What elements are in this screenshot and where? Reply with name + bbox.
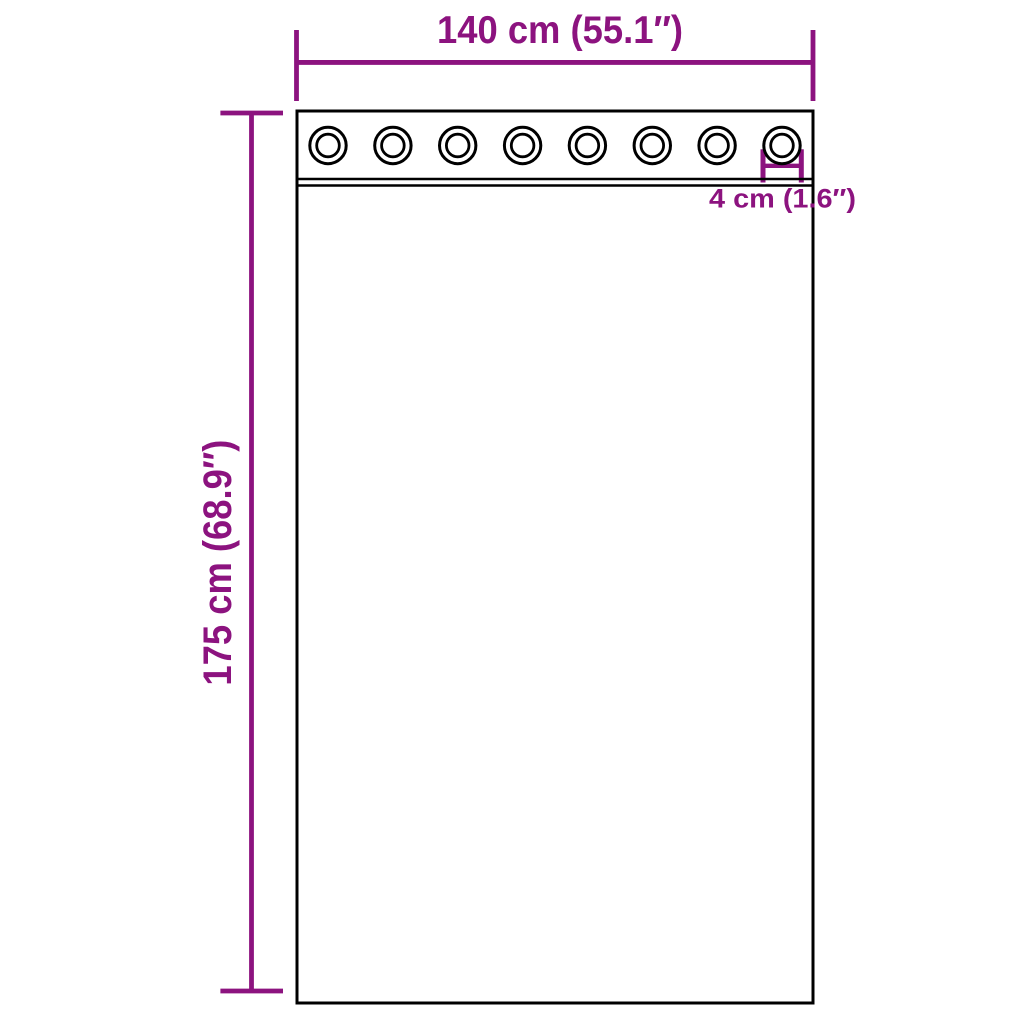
svg-text:4 cm (1.6″): 4 cm (1.6″) bbox=[709, 183, 856, 213]
svg-text:175 cm (68.9″): 175 cm (68.9″) bbox=[196, 440, 240, 686]
svg-text:140 cm (55.1″): 140 cm (55.1″) bbox=[437, 9, 683, 52]
